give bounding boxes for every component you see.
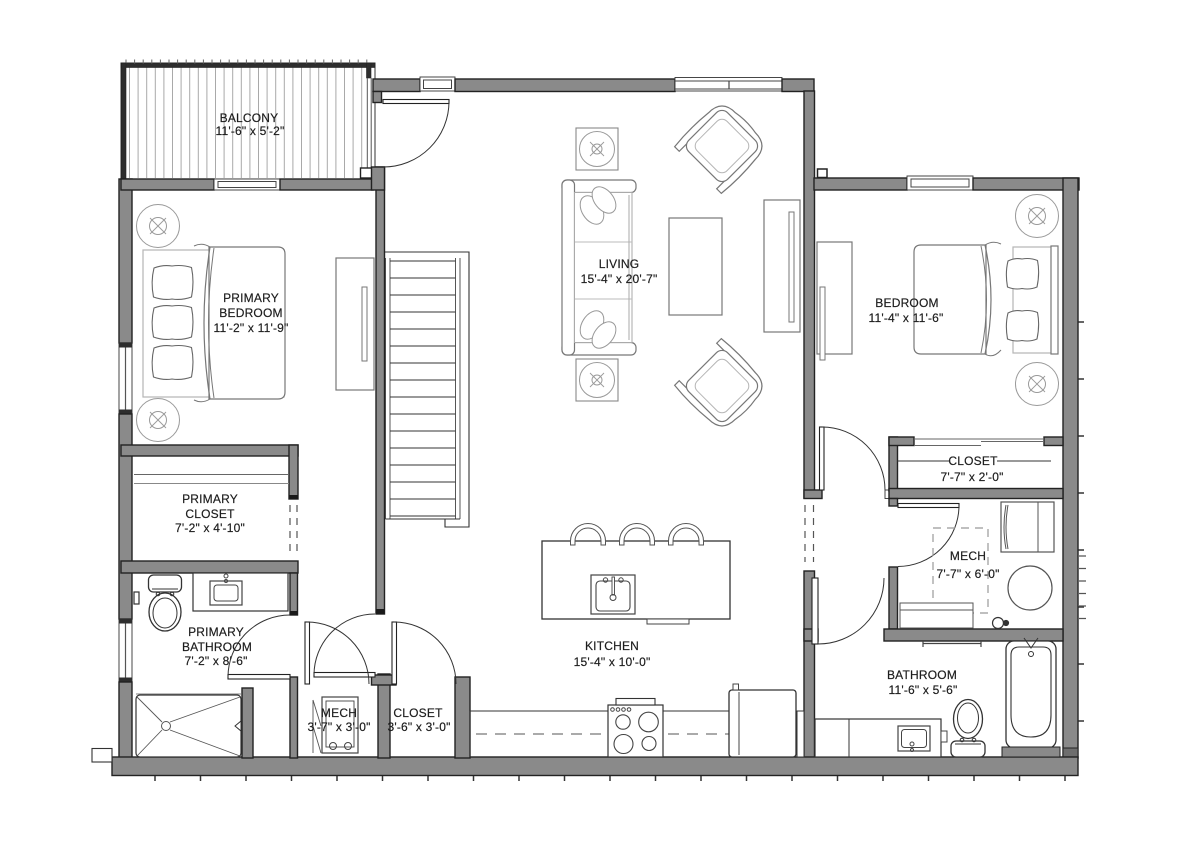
- svg-text:3'-7" x 3'-0": 3'-7" x 3'-0": [307, 720, 370, 734]
- svg-text:15'-4" x 20'-7": 15'-4" x 20'-7": [581, 272, 658, 286]
- svg-text:BATHROOM: BATHROOM: [887, 668, 957, 682]
- svg-text:BEDROOM: BEDROOM: [219, 306, 282, 320]
- svg-text:LIVING: LIVING: [599, 257, 640, 271]
- svg-text:7'-2" x 4'-10": 7'-2" x 4'-10": [175, 521, 245, 535]
- svg-text:3'-6" x 3'-0": 3'-6" x 3'-0": [387, 720, 450, 734]
- svg-text:11'-2" x 11'-9": 11'-2" x 11'-9": [213, 321, 288, 335]
- svg-text:PRIMARY: PRIMARY: [182, 492, 238, 506]
- svg-text:CLOSET: CLOSET: [393, 706, 443, 720]
- svg-text:7'-7" x 6'-0": 7'-7" x 6'-0": [936, 567, 999, 581]
- svg-text:MECH: MECH: [321, 706, 357, 720]
- svg-text:BALCONY: BALCONY: [220, 111, 279, 125]
- svg-text:BEDROOM: BEDROOM: [875, 296, 938, 310]
- svg-text:7'-7" x 2'-0": 7'-7" x 2'-0": [940, 470, 1003, 484]
- svg-text:11'-6" x 5'-2": 11'-6" x 5'-2": [215, 124, 284, 138]
- svg-text:KITCHEN: KITCHEN: [585, 639, 639, 653]
- svg-text:MECH: MECH: [950, 549, 986, 563]
- svg-text:CLOSET: CLOSET: [185, 507, 235, 521]
- svg-text:7'-2" x 8'-6": 7'-2" x 8'-6": [184, 654, 247, 668]
- svg-text:CLOSET: CLOSET: [948, 454, 998, 468]
- svg-text:11'-6" x 5'-6": 11'-6" x 5'-6": [888, 683, 957, 697]
- svg-text:15'-4" x 10'-0": 15'-4" x 10'-0": [574, 655, 651, 669]
- svg-text:PRIMARY: PRIMARY: [188, 625, 244, 639]
- svg-text:BATHROOM: BATHROOM: [182, 640, 252, 654]
- svg-text:PRIMARY: PRIMARY: [223, 291, 279, 305]
- svg-text:11'-4" x 11'-6": 11'-4" x 11'-6": [868, 311, 943, 325]
